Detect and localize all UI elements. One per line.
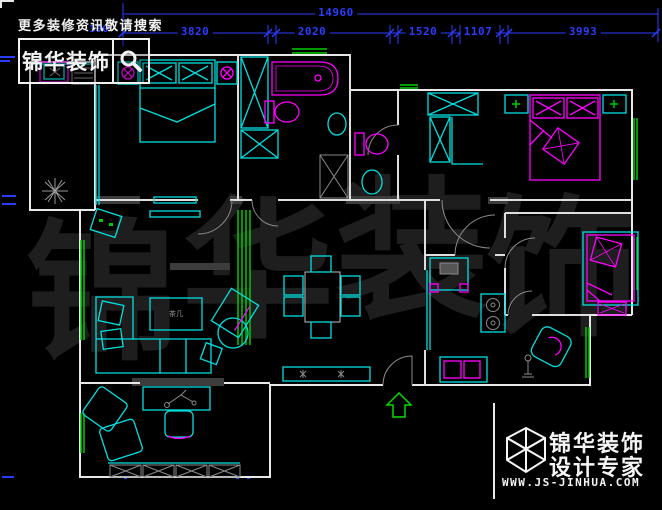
toilet (355, 133, 388, 155)
kitchen-sliding-door (427, 270, 430, 350)
ceiling-lamp-icon (221, 67, 233, 79)
sink-bowl (444, 361, 461, 378)
fridge-detail (440, 263, 458, 274)
stove-burner (487, 299, 500, 312)
dim-segment-4: 1107 (461, 26, 496, 38)
decor-mark (300, 370, 306, 378)
window-study-west (81, 413, 84, 453)
cube-logo-icon (504, 426, 548, 478)
sink (328, 113, 346, 135)
door-arc-entry (383, 356, 412, 385)
toilet (265, 101, 299, 123)
entrance-arrow-icon (387, 393, 411, 417)
door-arc-bedroom1 (442, 200, 490, 248)
stove-burner (487, 317, 500, 330)
window-right-bedroom1 (634, 118, 637, 180)
door-arc-bath1 (252, 200, 278, 226)
dim-segment-1: 3820 (178, 26, 213, 38)
coffee-table-label: 茶几 (169, 309, 183, 319)
plant (42, 178, 68, 204)
magnifier-icon (114, 49, 148, 73)
dim-segment-3: 1520 (406, 26, 441, 38)
bed-bedroom2 (587, 235, 634, 315)
bathtub (272, 62, 338, 95)
promo-tagline: 更多装修资讯敬请搜索 (18, 15, 163, 34)
tv-cabinet (150, 211, 200, 217)
fixtures-group (40, 62, 634, 438)
lounge-chair (99, 418, 144, 461)
balcony-glazing (32, 64, 99, 205)
sink-bowl (464, 361, 480, 378)
border-corner (0, 0, 14, 8)
sofa-l-shape (96, 297, 211, 373)
console-cabinet (283, 367, 370, 381)
round-chair (218, 318, 248, 348)
reading-chair (529, 324, 574, 369)
door-arc-east-balcony (508, 291, 532, 315)
search-banner[interactable]: 锦华装饰 (18, 38, 150, 84)
windows-group (81, 49, 637, 453)
bed-master (140, 60, 215, 142)
bench (90, 209, 122, 238)
dim-segment-5: 3993 (566, 26, 601, 38)
door-arc-bath2 (368, 125, 398, 155)
counter-corner (430, 284, 438, 292)
office-chair (165, 411, 193, 437)
floor-lamp (522, 355, 534, 377)
search-brand-label: 锦华装饰 (20, 46, 112, 76)
logo-website: WWW.JS-JINHUA.COM (502, 476, 640, 489)
bed-bedroom1 (530, 95, 600, 180)
logo-divider-line (493, 403, 495, 499)
stove (481, 294, 505, 332)
sink (362, 170, 382, 194)
window-top-bedroom (400, 85, 418, 88)
dining-chairs (284, 256, 360, 338)
window-east-balcony (586, 327, 589, 378)
door-arc-kitchen (455, 215, 495, 255)
glass-partition (238, 210, 250, 345)
study-cabinet-hatch (110, 465, 240, 477)
inner-walls (95, 55, 632, 385)
dim-segment-2: 2020 (295, 26, 330, 38)
door-arc-bedroom2 (505, 238, 535, 268)
counter-corner (460, 284, 468, 292)
wardrobe-bedroom1 (428, 93, 483, 164)
window-top-bath (292, 49, 327, 53)
chair-detail (543, 335, 564, 356)
details-group (42, 62, 535, 477)
dim-total: 14960 (315, 7, 357, 19)
dining-table (305, 272, 340, 322)
lounge-chair (81, 385, 128, 432)
window-living-west (81, 240, 84, 340)
cad-floorplan-screenshot: 锦 华 装 饰 (0, 0, 662, 510)
decor-mark (338, 370, 344, 378)
door-arc-bedroom-tl (198, 200, 232, 234)
desk-lamp (168, 390, 193, 404)
